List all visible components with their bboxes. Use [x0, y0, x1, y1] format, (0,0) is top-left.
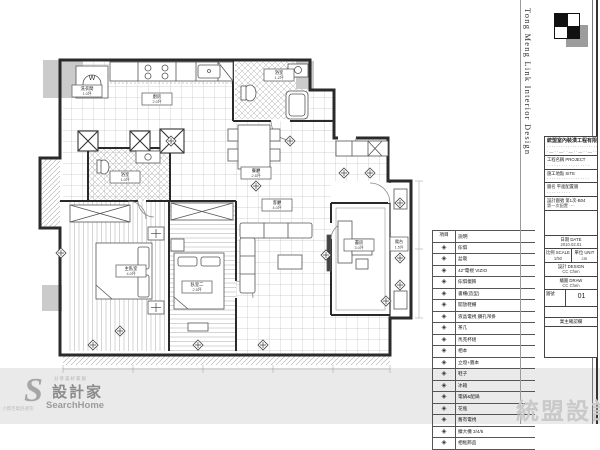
svg-text:臥室二: 臥室二 — [191, 281, 205, 288]
floor-plan: W — [38, 53, 428, 393]
legend-marker-icon: ◈ — [433, 335, 456, 346]
legend-marker-icon: ◈ — [433, 369, 456, 380]
room-label-study: 書房 3.0坪 — [344, 239, 374, 251]
svg-text:客廳: 客廳 — [273, 199, 282, 206]
svg-text:浴室: 浴室 — [121, 171, 130, 178]
legend-marker-icon: ◈ — [433, 254, 456, 265]
drawing-name-row: 圖名 平面配置圖 ·········· — [545, 183, 597, 197]
logo-name: 設計家 — [52, 381, 103, 402]
legend-header-desc: 說明 — [456, 233, 535, 240]
drawing-number-row: 圖號 01 — [545, 290, 597, 307]
svg-text:洗衣間: 洗衣間 — [81, 85, 94, 92]
logo-tiny-caption: 小資百萬舒適宅 — [2, 406, 34, 412]
legend-marker-icon: ◈ — [433, 312, 456, 323]
design-row: 設計 DESIGN CC Chen — [545, 263, 597, 277]
owner-confirm-header: 業主確認欄 — [545, 318, 597, 327]
logo-subtitle: SearchHome — [46, 400, 104, 411]
study-room — [336, 208, 385, 310]
room-label-master: 主臥室 4.0坪 — [116, 265, 146, 277]
svg-text:浴室: 浴室 — [275, 69, 284, 76]
svg-text:1.0坪: 1.0坪 — [120, 177, 129, 182]
svg-text:主臥室: 主臥室 — [125, 265, 139, 272]
company-logo — [554, 13, 594, 53]
legend-header-item: 項目 — [433, 231, 456, 242]
svg-text:3.0坪: 3.0坪 — [354, 245, 363, 250]
logo-checker-icon — [554, 13, 580, 39]
project-name-row: 工程名稱 PROJECT ·················· — [545, 156, 597, 170]
searchhome-logo: 分享美好家居 設計家 SearchHome S 小資百萬舒適宅 — [24, 374, 154, 420]
legend-marker-icon: ◈ — [433, 289, 456, 300]
title-block-spacer — [545, 211, 597, 236]
legend-marker-icon: ◈ — [433, 300, 456, 311]
date-row: 日期 DATE 2010.02.01 — [545, 236, 597, 250]
svg-text:4.0坪: 4.0坪 — [126, 271, 135, 276]
company-vertical-title: Tong Meng Link Interior Design — [523, 8, 533, 158]
scale-unit-row: 比例 SCALE 1/50 單位 UNIT cm — [545, 249, 597, 263]
kitchen-nook — [336, 141, 388, 156]
svg-text:書房: 書房 — [355, 239, 364, 246]
legend-marker-icon: ◈ — [433, 358, 456, 369]
svg-text:1.5坪: 1.5坪 — [395, 245, 404, 250]
legend-marker-icon: ◈ — [433, 427, 456, 438]
room-label-balcony: 陽台 1.5坪 — [390, 237, 408, 251]
room-label-kitchen: 廚房 2.0坪 — [142, 93, 172, 105]
watermark-text: 統盟設計 — [516, 392, 600, 426]
legend-marker-icon: ◈ — [433, 438, 456, 449]
svg-text:2.0坪: 2.0坪 — [152, 99, 161, 104]
legend-marker-icon: ◈ — [433, 381, 456, 392]
legend-marker-icon: ◈ — [433, 266, 456, 277]
svg-text:陽台: 陽台 — [395, 238, 403, 244]
svg-text:餐廳: 餐廳 — [252, 167, 261, 174]
legend-row: ◈擴大機 3/4/5 — [433, 427, 535, 439]
logo-s-icon: S — [24, 374, 43, 408]
panel-left-border — [520, 0, 521, 424]
room-label-living: 客廳 4.0坪 — [262, 199, 292, 211]
kitchen-counter — [110, 62, 233, 83]
svg-text:1.0坪: 1.0坪 — [82, 91, 91, 96]
room-label-dining: 餐廳 2.5坪 — [241, 167, 271, 179]
legend-row: ◈相框飾品 — [433, 438, 535, 450]
legend-marker-icon: ◈ — [433, 346, 456, 357]
site-row: 施工地點 SITE ·················· — [545, 170, 597, 184]
title-block-spacer — [545, 307, 597, 318]
svg-text:1.2坪: 1.2坪 — [274, 75, 283, 80]
company-info: 統盟室內裝潢工程有限公司 ···························… — [545, 137, 597, 156]
legend-marker-icon: ◈ — [433, 404, 456, 415]
legend-marker-icon: ◈ — [433, 277, 456, 288]
room-label-bath2: 浴室 1.0坪 — [110, 171, 140, 183]
draw-row: 繪圖 DRAW CC Chen — [545, 277, 597, 291]
drawing-sheet: { "sidebar": { "vertical_title": "Tong M… — [0, 0, 600, 424]
owner-confirm-box — [545, 327, 597, 357]
room-label-bedroom2: 臥室二 2.5坪 — [182, 281, 212, 293]
washer-icon: W — [89, 75, 96, 82]
svg-text:4.0坪: 4.0坪 — [272, 205, 281, 210]
legend-marker-icon: ◈ — [433, 323, 456, 334]
sheet-no-row: 設計圖號 第1次-B04 第一次配置 ···· — [545, 197, 597, 211]
svg-text:2.5坪: 2.5坪 — [251, 173, 260, 178]
room-label-laundry: 洗衣間 1.0坪 — [72, 85, 102, 97]
title-block: 統盟室內裝潢工程有限公司 ···························… — [544, 136, 598, 358]
svg-text:廚房: 廚房 — [153, 93, 162, 100]
legend-marker-icon: ◈ — [433, 392, 456, 403]
room-label-bath1: 浴室 1.2坪 — [264, 69, 294, 81]
svg-text:2.5坪: 2.5坪 — [192, 287, 201, 292]
legend-marker-icon: ◈ — [433, 243, 456, 254]
